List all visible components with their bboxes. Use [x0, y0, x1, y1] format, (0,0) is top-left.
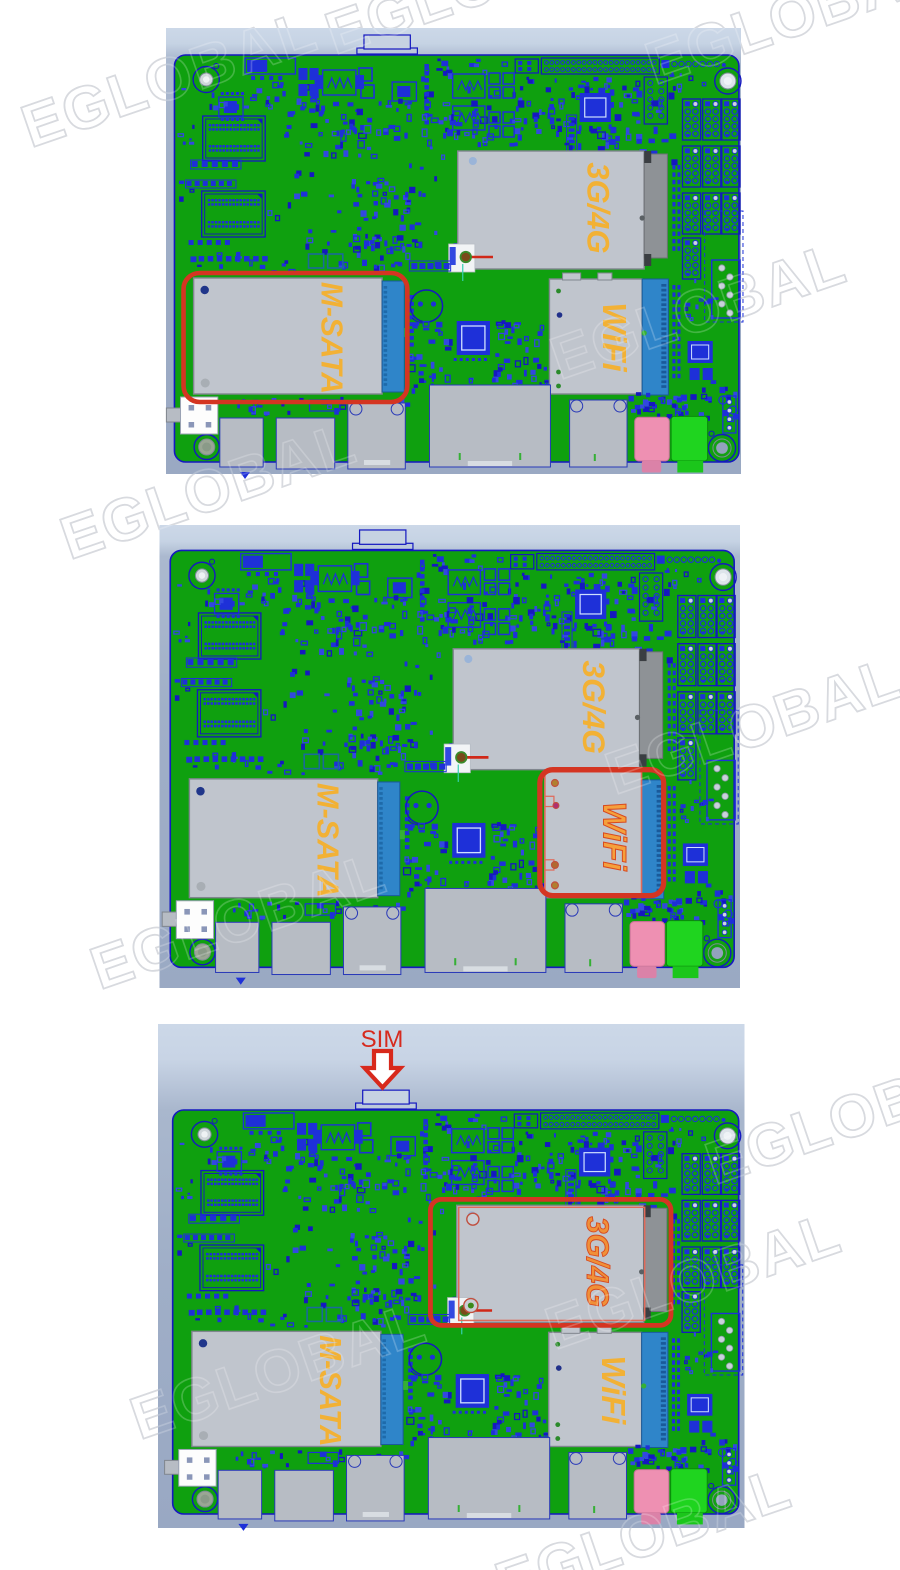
- svg-text:WiFi: WiFi: [596, 802, 632, 872]
